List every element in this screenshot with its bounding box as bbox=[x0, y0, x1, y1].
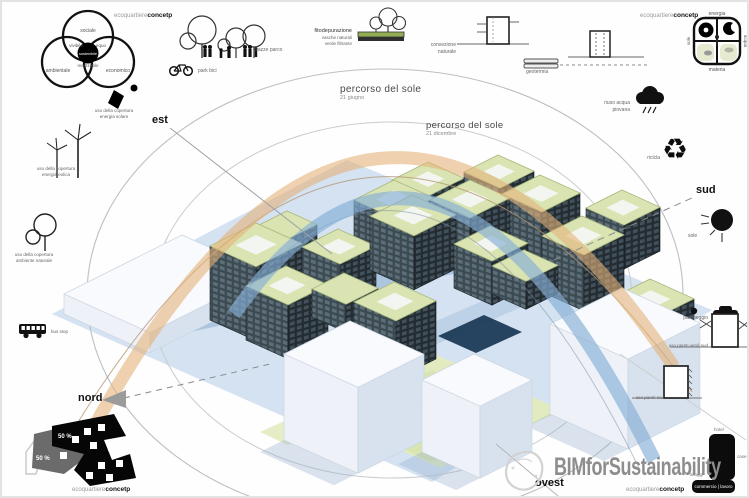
nature-roof-label: uso della copertura ambiente naturale bbox=[8, 252, 60, 264]
recycle-icon: ♻ bbox=[662, 136, 688, 165]
natural-convection-icon bbox=[457, 14, 529, 48]
site-plan-value-1: 50 % bbox=[58, 434, 72, 440]
matrix-label-left: sole bbox=[686, 36, 691, 45]
brand-bottom-left: ecoquartiereconcetp bbox=[72, 486, 130, 493]
solar-roof-label: uso della copertura energia solare bbox=[88, 108, 140, 120]
compass-est: est bbox=[152, 114, 168, 126]
site-plan-diagram: 50 % 50 % bbox=[24, 412, 166, 490]
watermark-logo bbox=[498, 446, 550, 498]
concept-board: sociale vivibile equo sostenibile realiz… bbox=[0, 0, 749, 498]
bus-icon bbox=[18, 322, 48, 339]
site-plan-value-2: 50 % bbox=[36, 456, 50, 462]
matrix-label-top: energia bbox=[709, 11, 726, 17]
compass-sud: sud bbox=[696, 184, 716, 196]
sun-label: sole bbox=[688, 233, 697, 240]
wind-roof-label: uso della copertura energia eolica bbox=[30, 166, 82, 178]
park-trees-people-icon bbox=[174, 10, 278, 62]
geothermal-icon bbox=[520, 28, 652, 74]
venn-label-top-right: equo bbox=[96, 43, 107, 48]
matrix-label-right: acqua bbox=[743, 35, 748, 48]
sun-path-summer-label: percorso del sole 21 giugno bbox=[340, 84, 421, 101]
park-label: piazze parco bbox=[254, 47, 282, 54]
watermark-text: BIMforSustainability bbox=[554, 453, 721, 482]
brand-top-left: ecoquartiereconcetp bbox=[114, 12, 172, 19]
bike-label: park bici bbox=[198, 68, 217, 75]
geothermal-label: geotermia bbox=[526, 69, 548, 76]
brand-bottom-right: ecoquartiereconcetp bbox=[626, 486, 684, 493]
tree-icon bbox=[20, 212, 66, 252]
zone-hotel-label: hotel bbox=[714, 427, 724, 433]
person-symbol bbox=[715, 35, 719, 39]
recycle-label: ricicla bbox=[634, 155, 660, 162]
parking-label: parcheggio bbox=[674, 315, 708, 322]
venn-label-center: sostenibile bbox=[79, 52, 97, 56]
phyto-label: fitodepurazione vasche naturali verde fi… bbox=[302, 28, 352, 47]
bus-label: bus stop bbox=[51, 329, 68, 335]
zone-case-label: case bbox=[737, 454, 747, 460]
brand-top-right: ecoquartiereconcetp bbox=[640, 12, 698, 19]
green-walls-label: uso pareti verdi sud bbox=[662, 343, 708, 349]
sun-icon bbox=[698, 204, 740, 244]
phytodepuration-icon bbox=[354, 7, 408, 45]
matrix-quadrant-material-2 bbox=[720, 44, 737, 61]
venn-label-left: ambientale bbox=[46, 68, 71, 74]
venn-label-top: sociale bbox=[80, 28, 96, 34]
venn-label-right: economico bbox=[106, 68, 130, 74]
rain-reuse-label: riuso acqua piovana bbox=[588, 100, 630, 113]
matrix-label-bottom: materia bbox=[709, 67, 726, 73]
venn-label-bottom-center: realizzabile bbox=[78, 63, 100, 68]
zoning-bar-text: commercio | lavoro bbox=[695, 484, 733, 489]
convection-label: convezione naturale bbox=[414, 42, 456, 55]
sun-path-winter-label: percorso del sole 21 dicembre bbox=[426, 120, 503, 137]
south-walls-label: uso pareti sud bbox=[624, 395, 664, 401]
bike-icon bbox=[168, 61, 195, 76]
venn-label-top-left: vivibile bbox=[69, 43, 83, 48]
compass-nord: nord bbox=[78, 392, 102, 404]
rain-cloud-icon bbox=[632, 86, 668, 114]
